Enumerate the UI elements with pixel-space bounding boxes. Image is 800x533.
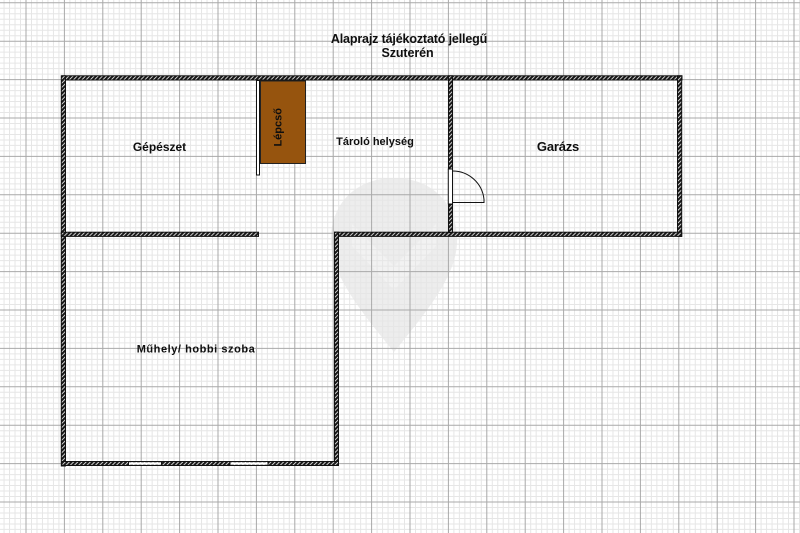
svg-text:Műhely/ hobbi szoba: Műhely/ hobbi szoba bbox=[137, 344, 256, 356]
svg-text:Garázs: Garázs bbox=[537, 139, 579, 154]
svg-text:Lépcső: Lépcső bbox=[272, 108, 284, 147]
svg-text:Gépészet: Gépészet bbox=[133, 140, 186, 154]
svg-text:Tároló helység: Tároló helység bbox=[336, 136, 414, 148]
svg-text:Alaprajz tájékoztató jellegű: Alaprajz tájékoztató jellegű bbox=[331, 32, 487, 46]
svg-text:Szuterén: Szuterén bbox=[382, 46, 434, 60]
